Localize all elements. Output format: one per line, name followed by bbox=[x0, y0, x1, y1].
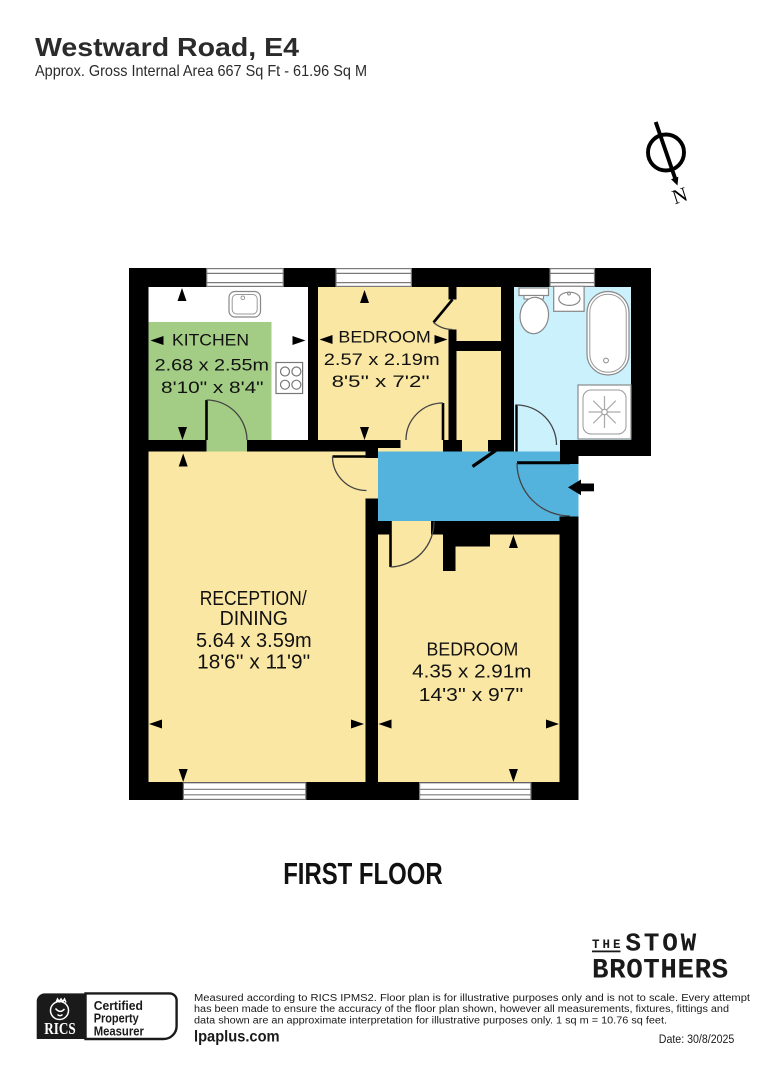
svg-text:Approx. Gross Internal Area 66: Approx. Gross Internal Area 667 Sq Ft - … bbox=[35, 63, 367, 80]
svg-text:4.35 x 2.91m: 4.35 x 2.91m bbox=[412, 661, 531, 682]
svg-text:2.57 x 2.19m: 2.57 x 2.19m bbox=[324, 350, 440, 369]
svg-text:lpaplus.com: lpaplus.com bbox=[194, 1029, 280, 1046]
svg-text:DINING: DINING bbox=[220, 607, 288, 630]
svg-text:Measured according to RICS IPM: Measured according to RICS IPMS2. Floor … bbox=[194, 993, 750, 1004]
svg-text:14'3'' x 9'7'': 14'3'' x 9'7'' bbox=[419, 684, 524, 705]
svg-text:Measurer: Measurer bbox=[94, 1023, 144, 1038]
svg-text:Westward Road, E4: Westward Road, E4 bbox=[35, 32, 300, 62]
svg-text:Date: 30/8/2025: Date: 30/8/2025 bbox=[659, 1032, 735, 1046]
svg-text:BROTHERS: BROTHERS bbox=[592, 956, 728, 987]
svg-text:8'10" x 8'4": 8'10" x 8'4" bbox=[161, 378, 264, 397]
svg-text:FIRST FLOOR: FIRST FLOOR bbox=[283, 856, 442, 891]
svg-text:KITCHEN: KITCHEN bbox=[172, 331, 249, 350]
svg-text:5.64 x 3.59m: 5.64 x 3.59m bbox=[196, 629, 312, 652]
svg-text:2.68 x 2.55m: 2.68 x 2.55m bbox=[155, 355, 269, 374]
svg-text:BEDROOM: BEDROOM bbox=[338, 328, 430, 347]
svg-text:BEDROOM: BEDROOM bbox=[427, 638, 519, 659]
svg-text:THE: THE bbox=[592, 938, 621, 952]
svg-text:has been made to ensure the ac: has been made to ensure the accuracy of … bbox=[194, 1004, 729, 1015]
svg-text:data shown are an approximate: data shown are an approximate interpreta… bbox=[194, 1016, 667, 1027]
svg-text:RICS: RICS bbox=[44, 1019, 75, 1038]
svg-text:18'6'' x 11'9'': 18'6'' x 11'9'' bbox=[197, 650, 310, 673]
svg-text:8'5'' x 7'2'': 8'5'' x 7'2'' bbox=[332, 372, 430, 391]
